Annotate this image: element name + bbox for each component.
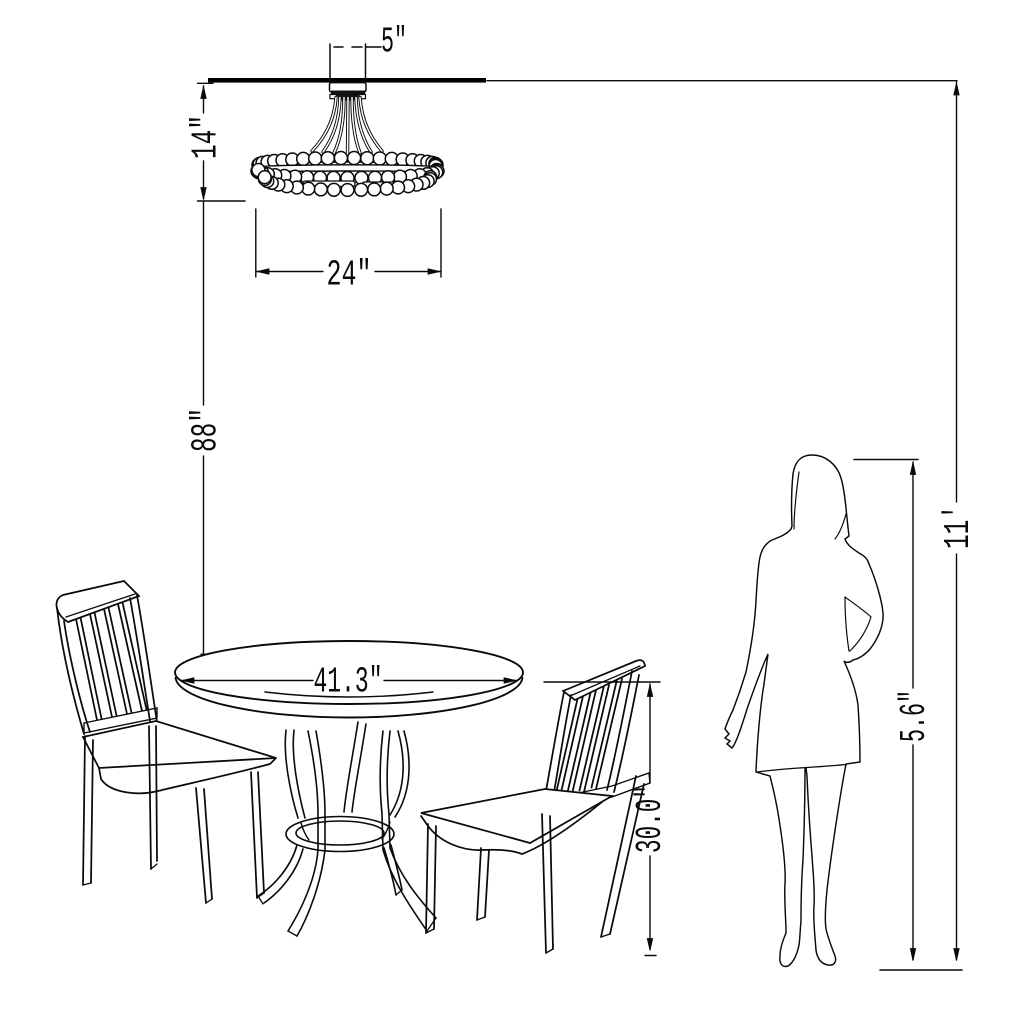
svg-text:14": 14": [186, 115, 227, 159]
svg-text:88": 88": [186, 408, 227, 452]
svg-text:11': 11': [938, 505, 979, 549]
svg-text:5.6": 5.6": [894, 690, 935, 742]
svg-text:24": 24": [327, 255, 372, 296]
svg-text:41.3": 41.3": [314, 662, 383, 703]
svg-text:5": 5": [381, 22, 407, 63]
svg-text:30.0": 30.0": [630, 785, 671, 853]
